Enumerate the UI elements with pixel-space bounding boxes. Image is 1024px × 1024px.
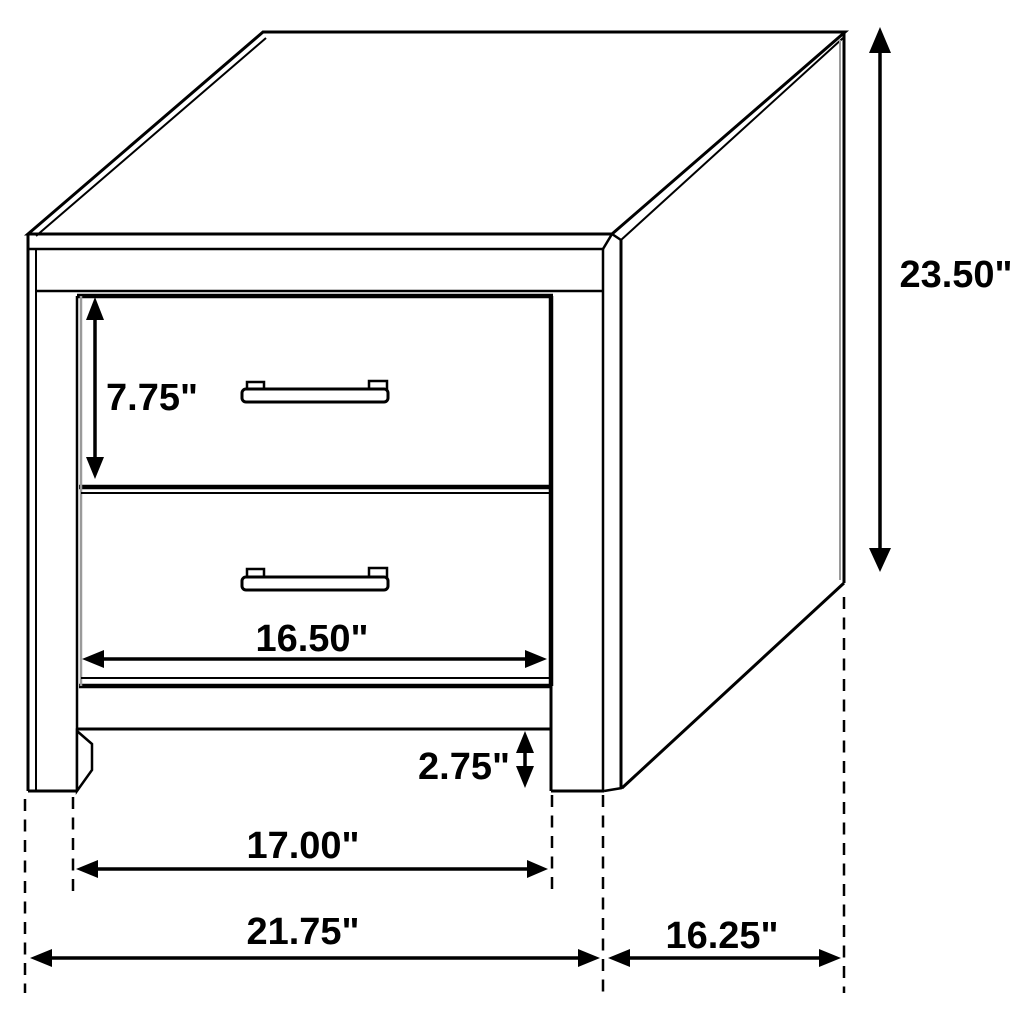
handle-bar	[242, 577, 388, 590]
dim-drawer-height: 7.75"	[86, 297, 198, 479]
dim-drawer-width: 16.50"	[82, 618, 547, 668]
drawer-height-label: 7.75"	[106, 377, 198, 419]
handle-bar	[242, 389, 388, 402]
left-foot-inner-face	[77, 731, 92, 791]
inner-width-label: 17.00"	[246, 825, 359, 867]
overall-width-label: 21.75"	[246, 911, 359, 953]
drawer-width-label: 16.50"	[255, 618, 368, 660]
nightstand-dimension-diagram: 23.50" 7.75" 16.50" 2.75" 17.00" 21.75"	[0, 0, 1024, 1024]
dim-overall-height: 23.50"	[869, 27, 1013, 572]
foot-height-label: 2.75"	[418, 746, 510, 788]
depth-label: 16.25"	[665, 915, 778, 957]
front-frame	[28, 234, 622, 791]
dim-depth: 16.25"	[608, 915, 841, 967]
dim-overall-width: 21.75"	[30, 911, 600, 967]
drawer-1-handle	[242, 381, 388, 402]
dim-inner-width: 17.00"	[76, 825, 548, 878]
dim-foot-height: 2.75"	[418, 731, 534, 788]
drawer-2-handle	[242, 568, 388, 590]
overall-height-label: 23.50"	[899, 254, 1012, 296]
diagram-canvas: 23.50" 7.75" 16.50" 2.75" 17.00" 21.75"	[0, 0, 1024, 1024]
top-face	[28, 32, 845, 249]
